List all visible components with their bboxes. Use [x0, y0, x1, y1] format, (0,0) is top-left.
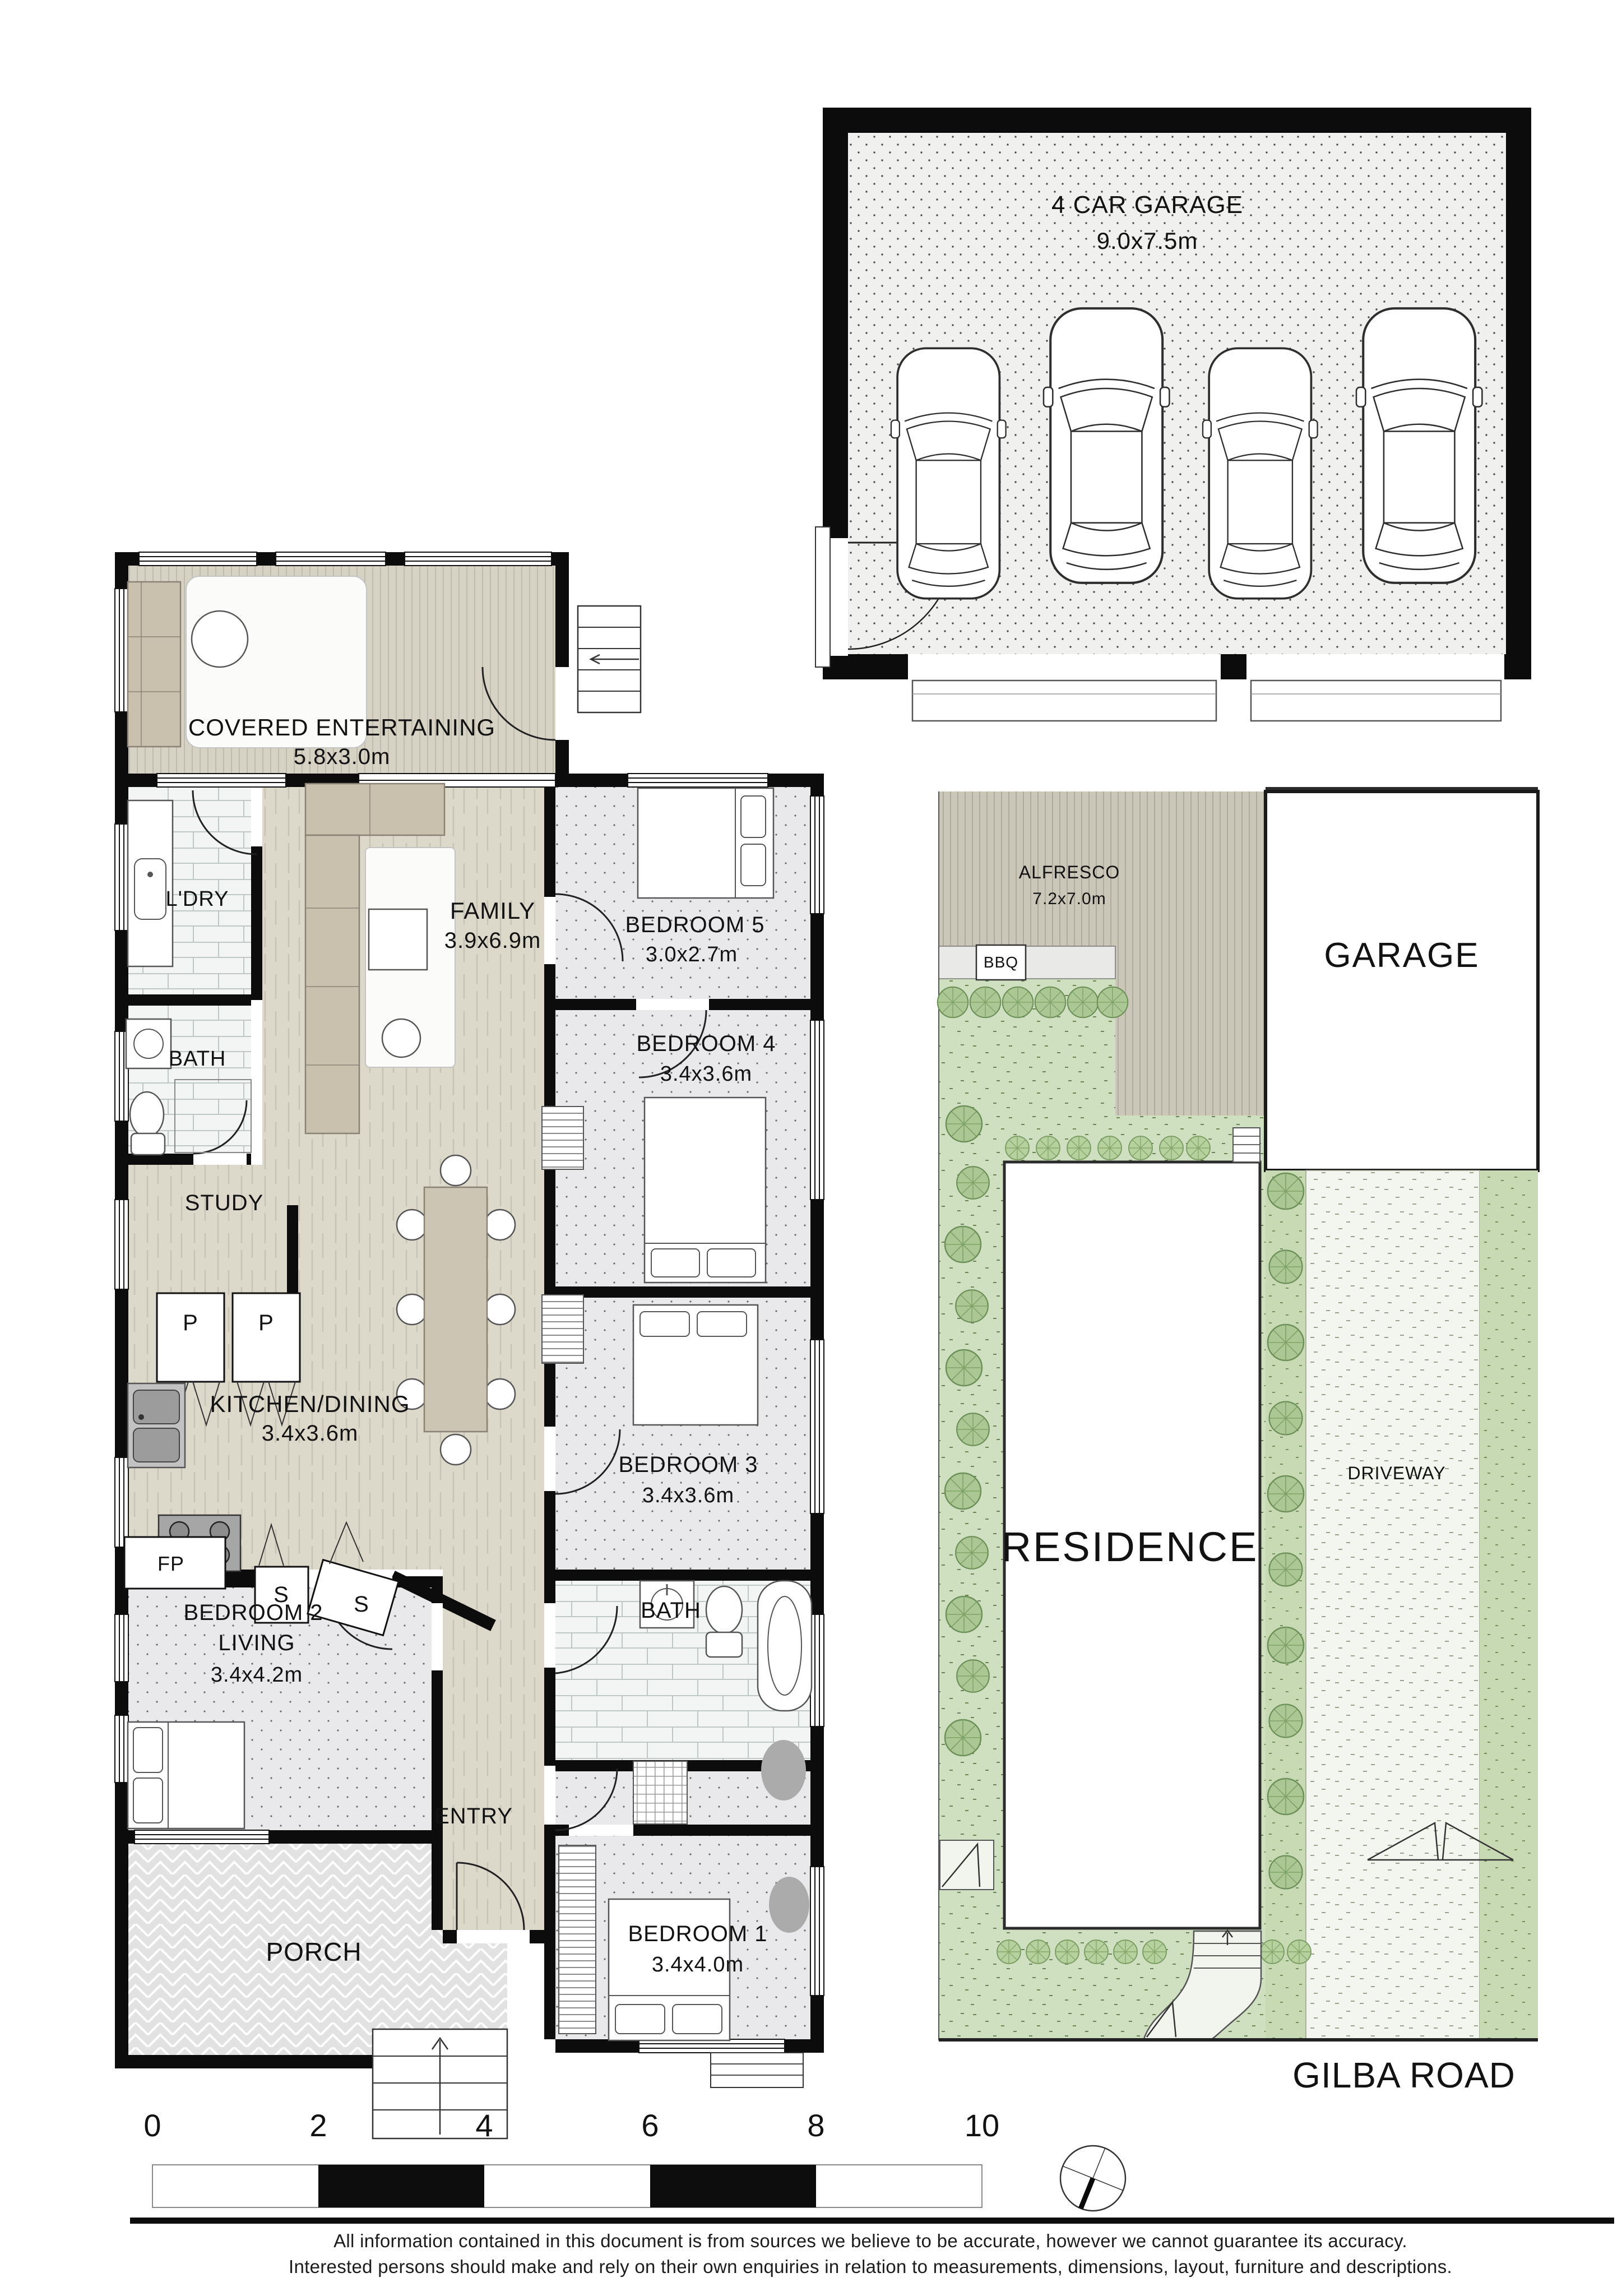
site-driveway: DRIVEWAY [1347, 1464, 1445, 1482]
room-laundry: L'DRY [166, 888, 229, 910]
pantry-label-2: P [258, 1312, 274, 1334]
room-bedroom2-line1: BEDROOM 2 [183, 1601, 323, 1624]
scale-tick-4: 4 [475, 2110, 493, 2141]
room-entry: ENTRY [434, 1805, 513, 1827]
pantry-label-1: P [183, 1312, 198, 1334]
room-bedroom4-dims: 3.4x3.6m [660, 1063, 752, 1085]
room-bedroom2-line2: LIVING [218, 1632, 295, 1654]
room-kitchen-dining-dims: 3.4x3.6m [262, 1422, 359, 1445]
room-porch: PORCH [266, 1939, 362, 1965]
scale-tick-2: 2 [309, 2110, 327, 2141]
site-bbq: BBQ [984, 955, 1018, 970]
disclaimer-line2: Interested persons should make and rely … [289, 2256, 1452, 2278]
site-alfresco-dims: 7.2x7.0m [1032, 891, 1106, 908]
disclaimer-line1: All information contained in this docume… [333, 2230, 1407, 2252]
room-bedroom5: BEDROOM 5 [625, 914, 764, 936]
room-bedroom4: BEDROOM 4 [636, 1033, 776, 1055]
cupboard-label-2: S [354, 1593, 369, 1615]
garage-plan-dims: 9.0x7.5m [1097, 229, 1198, 253]
room-bedroom1-dims: 3.4x4.0m [652, 1954, 744, 1975]
site-garage: GARAGE [1324, 938, 1479, 973]
room-bedroom2-dims: 3.4x4.2m [211, 1664, 303, 1686]
room-bedroom3: BEDROOM 3 [618, 1453, 758, 1476]
room-bedroom5-dims: 3.0x2.7m [646, 944, 738, 965]
floorplan-page: 4 CAR GARAGE 9.0x7.5m COVERED ENTERTAINI… [0, 0, 1622, 2296]
room-family-dims: 3.9x6.9m [444, 929, 541, 952]
garage-plan-title: 4 CAR GARAGE [1051, 193, 1243, 217]
room-bath-top: BATH [169, 1048, 226, 1070]
room-bedroom1: BEDROOM 1 [628, 1923, 767, 1945]
site-residence: RESIDENCE [1002, 1526, 1259, 1568]
site-alfresco: ALFRESCO [1019, 863, 1120, 881]
scale-tick-0: 0 [143, 2110, 161, 2141]
scale-tick-8: 8 [807, 2110, 824, 2141]
scale-tick-10: 10 [965, 2110, 999, 2141]
room-study: STUDY [185, 1192, 264, 1214]
scale-tick-6: 6 [641, 2110, 659, 2141]
room-kitchen-dining: KITCHEN/DINING [210, 1392, 410, 1416]
label-layer: 4 CAR GARAGE 9.0x7.5m COVERED ENTERTAINI… [0, 0, 1622, 2296]
site-road: GILBA ROAD [1292, 2057, 1516, 2093]
fireplace-label: FP [157, 1554, 184, 1574]
room-covered-entertaining: COVERED ENTERTAINING [188, 716, 495, 739]
room-bath-bottom: BATH [641, 1599, 701, 1622]
room-family: FAMILY [450, 899, 535, 923]
room-bedroom3-dims: 3.4x3.6m [642, 1485, 734, 1506]
room-covered-entertaining-dims: 5.8x3.0m [294, 746, 391, 768]
